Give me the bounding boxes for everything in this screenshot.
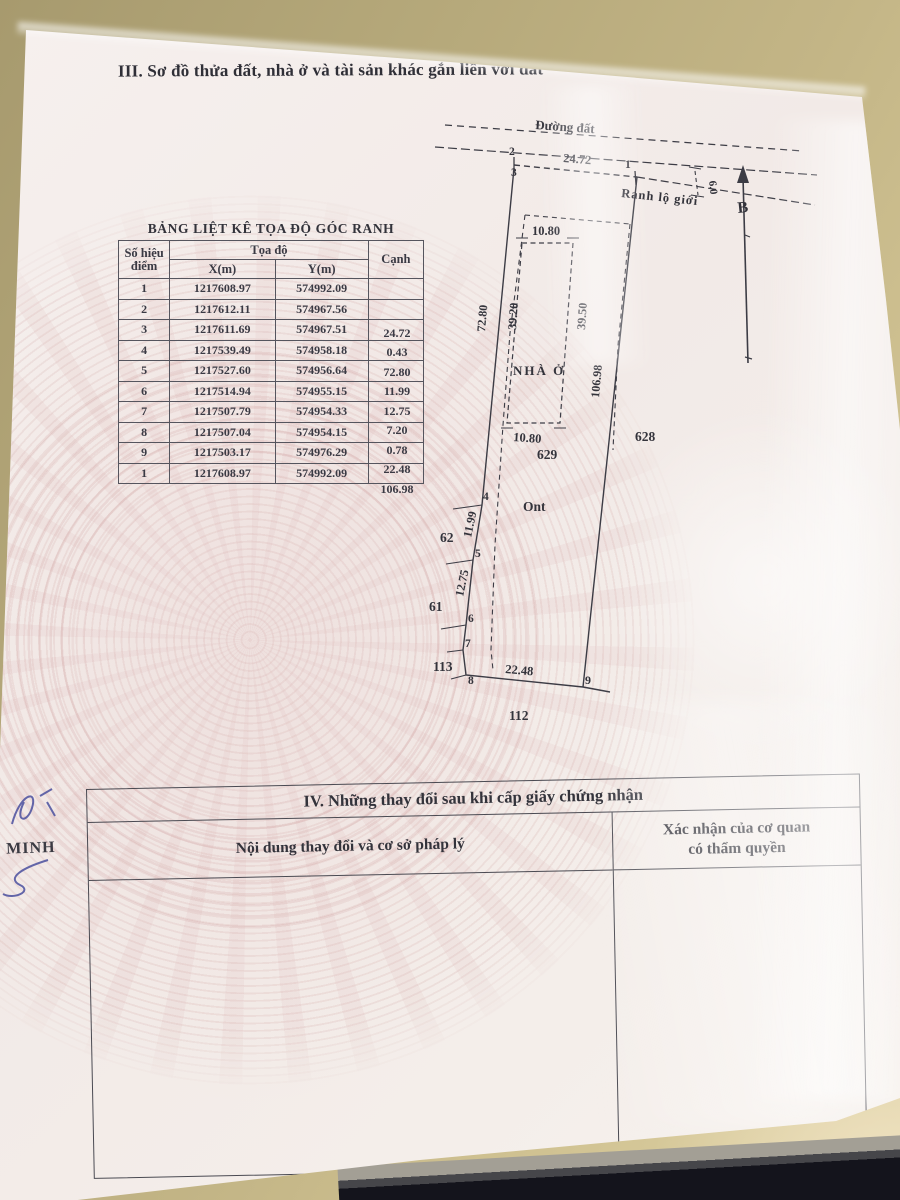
- point-label-7: 7: [465, 638, 471, 650]
- point-label-2: 2: [509, 146, 515, 158]
- dim-house-left: 39.20: [505, 302, 521, 330]
- land-type-label: Ont: [523, 499, 546, 514]
- point-label-8: 8: [468, 675, 474, 687]
- dim-right: 106.98: [588, 364, 605, 398]
- section4-col-right-header: Xác nhận của cơ quan có thẩm quyền: [613, 807, 861, 870]
- boundary-label: Ranh lộ giới: [621, 186, 699, 208]
- section4-right-column: Xác nhận của cơ quan có thẩm quyền: [613, 807, 867, 1165]
- section4-col-left-header: Nội dung thay đổi và cơ sở pháp lý: [88, 812, 613, 881]
- dim-house-bottom: 10.80: [513, 430, 542, 446]
- dim-seg56: 12.75: [452, 568, 471, 597]
- dim-bottom: 22.48: [505, 662, 534, 678]
- edge-value: 0.43: [370, 345, 424, 360]
- dim-house-top: 10.80: [532, 224, 560, 238]
- parcel-label-628: 628: [635, 429, 656, 444]
- dim-front: 24.72: [563, 151, 592, 167]
- section4-right-body: [614, 865, 867, 1165]
- coord-header-edge: Cạnh: [368, 241, 423, 279]
- edge-value: 22.48: [370, 462, 424, 477]
- point-label-5: 5: [475, 548, 481, 560]
- photo-background: III. Sơ đồ thửa đất, nhà ở và tài sản kh…: [0, 0, 900, 1200]
- coord-table-title: BẢNG LIỆT KÊ TỌA ĐỘ GÓC RANH: [118, 221, 424, 237]
- dim-left: 72.80: [474, 304, 490, 332]
- parcel-label-113: 113: [433, 659, 453, 674]
- parcel-label-112: 112: [509, 708, 529, 723]
- dim-house-right: 39.50: [574, 302, 590, 330]
- section4-table: IV. Những thay đổi sau khi cấp giấy chứn…: [86, 773, 868, 1178]
- point-label-6: 6: [468, 613, 474, 625]
- dim-setback: 6.0: [706, 180, 719, 195]
- point-label-9: 9: [585, 673, 591, 687]
- point-label-4: 4: [483, 491, 489, 503]
- coord-header-point: Số hiệu điểm: [119, 241, 170, 279]
- plot-boundary: [463, 168, 637, 692]
- plot-diagram: Đường đất 24.72 2 3 1 6.0 Ranh lộ giới: [425, 95, 885, 745]
- edge-value: 7.20: [370, 423, 424, 438]
- handwriting-mark: [0, 782, 90, 902]
- document-page: III. Sơ đồ thửa đất, nhà ở và tài sản kh…: [0, 0, 900, 1200]
- road-label: Đường đất: [535, 117, 596, 136]
- coord-table-wrap: Số hiệu điểm Tọa độ Cạnh X(m) Y(m) 11217…: [118, 240, 424, 484]
- edge-value: 106.98: [370, 482, 424, 497]
- house-outline: [501, 238, 579, 428]
- north-label: B: [737, 199, 750, 217]
- section4-left-body: [89, 870, 619, 1175]
- point-label-1: 1: [625, 159, 631, 171]
- edge-value: 11.99: [370, 384, 424, 399]
- parcel-label-629: 629: [537, 447, 558, 462]
- parcel-label-61: 61: [429, 599, 443, 614]
- edge-value: 72.80: [370, 365, 424, 380]
- section3-title: III. Sơ đồ thửa đất, nhà ở và tài sản kh…: [118, 58, 718, 81]
- coord-header-x: X(m): [170, 260, 275, 279]
- edge-value: 24.72: [370, 326, 424, 341]
- coord-header-coord: Tọa độ: [170, 241, 369, 260]
- coord-header-y: Y(m): [275, 260, 368, 279]
- parcel-label-62: 62: [440, 530, 454, 545]
- edge-value: 12.75: [370, 404, 424, 419]
- edge-values: 24.720.4372.8011.9912.757.200.7822.48106…: [370, 277, 424, 472]
- section4-left-column: Nội dung thay đổi và cơ sở pháp lý: [88, 812, 620, 1175]
- house-label: NHÀ Ở: [513, 363, 565, 378]
- edge-value: 0.78: [370, 443, 424, 458]
